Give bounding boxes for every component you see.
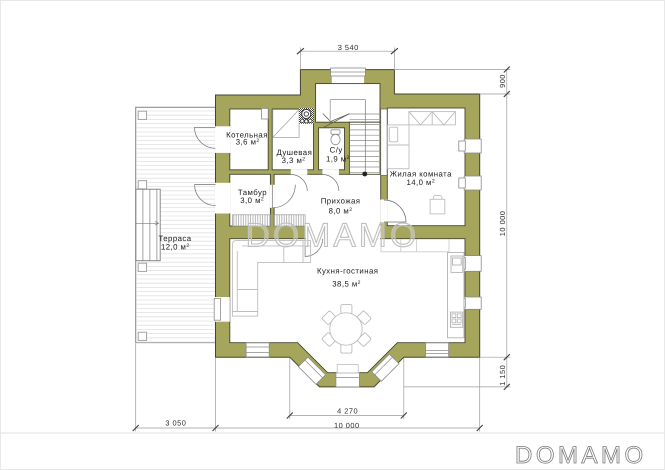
svg-text:12,0 м2: 12,0 м2 (161, 243, 190, 252)
svg-text:3,3 м2: 3,3 м2 (282, 156, 306, 165)
svg-text:10 000: 10 000 (498, 211, 507, 237)
svg-text:С/у: С/у (330, 145, 343, 154)
svg-text:8,0 м2: 8,0 м2 (329, 206, 353, 215)
svg-text:38,5 м2: 38,5 м2 (332, 279, 361, 288)
svg-text:3,6 м2: 3,6 м2 (236, 138, 260, 147)
svg-text:DOMAMO: DOMAMO (515, 442, 647, 469)
svg-text:1 150: 1 150 (498, 365, 507, 386)
svg-text:1,9 м2: 1,9 м2 (326, 155, 350, 164)
svg-text:3 540: 3 540 (338, 43, 359, 52)
svg-text:14,0 м2: 14,0 м2 (406, 178, 435, 187)
svg-text:DOMAMO: DOMAMO (246, 218, 420, 255)
svg-text:Кухня-гостиная: Кухня-гостиная (317, 267, 378, 276)
svg-text:Терраса: Терраса (158, 234, 191, 243)
svg-text:3,0 м2: 3,0 м2 (240, 196, 264, 205)
svg-text:Прихожая: Прихожая (321, 197, 361, 206)
svg-text:900: 900 (498, 74, 507, 88)
svg-text:4 270: 4 270 (337, 406, 358, 415)
svg-text:10 000: 10 000 (334, 421, 360, 430)
svg-text:3 050: 3 050 (165, 419, 186, 428)
